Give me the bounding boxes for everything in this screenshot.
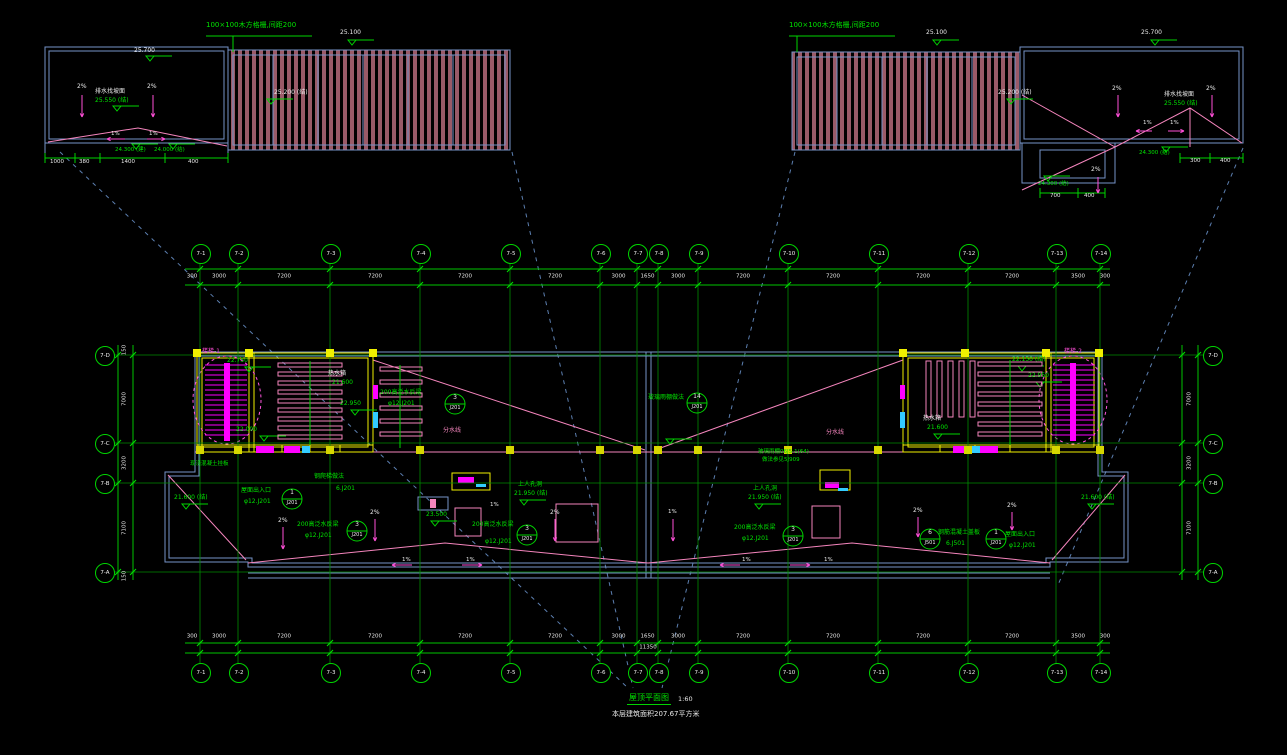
dim-edge: 300	[187, 634, 198, 640]
note-label: 1%	[668, 510, 677, 516]
note-label: 1%	[824, 558, 833, 564]
note-label: 分水线	[826, 430, 844, 436]
note-label: φ12.J201	[305, 533, 332, 539]
axis-bubble: 7-11	[869, 663, 889, 683]
note-label: 21.950 (结)	[748, 495, 782, 501]
axis-bubble: 7-8	[649, 244, 669, 264]
gen-rect	[506, 446, 514, 454]
gen-rect	[633, 446, 641, 454]
note-label: 钢筋混凝土盖板	[938, 530, 980, 536]
note-label: 2%	[370, 510, 380, 516]
note-label: 排水找坡面	[1164, 92, 1194, 98]
dim-top: 7200	[1005, 274, 1019, 280]
elevation-marker	[348, 40, 356, 45]
dim-edge: 300	[187, 274, 198, 280]
note-label: 2%	[1206, 86, 1216, 92]
note-label: 2%	[147, 84, 157, 90]
elevation-marker	[520, 500, 528, 505]
note-label: 25.200 (结)	[998, 90, 1032, 96]
callout-number: 1	[994, 530, 998, 536]
note-label: 24.300 (结)	[1139, 151, 1170, 157]
note-label: 热水箱	[328, 371, 346, 377]
gen-rect	[1095, 349, 1103, 357]
gen-rect	[196, 446, 204, 454]
note-label: 200高泛水反梁	[380, 390, 421, 396]
dim-top: 3500	[1071, 274, 1085, 280]
gen-rect	[380, 380, 422, 384]
dim-right: 7000	[1187, 392, 1193, 406]
note-label: 200高泛水反梁	[472, 522, 513, 528]
elevation-marker	[933, 40, 941, 45]
axis-bubble: 7-B	[1203, 474, 1223, 494]
gen-rect	[1070, 363, 1076, 441]
note-label: 楼梯-1	[202, 349, 220, 355]
note-label: 400	[188, 160, 199, 166]
dim-subtotal: 11350	[639, 645, 657, 651]
dim-bottom: 7200	[277, 634, 291, 640]
axis-bubble: 7-12	[959, 663, 979, 683]
dim-bottom: 3500	[1071, 634, 1085, 640]
note-label: 22.150 (结)	[1012, 357, 1046, 363]
dim-top: 3000	[612, 274, 626, 280]
note-label: 做法参见5J909	[762, 458, 800, 464]
dim-top: 7200	[916, 274, 930, 280]
area-note: 本层建筑面积207.67平方米	[612, 711, 700, 718]
dim-top: 1650	[641, 274, 655, 280]
callout-ref: J201	[449, 406, 460, 411]
detail-right	[789, 36, 1243, 198]
note-label: 21.600	[927, 425, 948, 431]
callout-number: 1	[290, 490, 294, 496]
dim-edge: 300	[1100, 274, 1111, 280]
axis-bubble: 7-9	[689, 663, 709, 683]
note-label: 23.500	[426, 512, 447, 518]
axis-bubble: 7-10	[779, 663, 799, 683]
note-label: 200高泛水反梁	[734, 525, 775, 531]
dim-edge: 150	[122, 571, 128, 582]
note-label: 1400	[121, 160, 135, 166]
gen-rect	[899, 349, 907, 357]
note-label: 热水箱	[923, 416, 941, 422]
drawing-scale: 1:60	[678, 696, 693, 703]
note-label: 24.300 (建)	[115, 148, 146, 154]
note-label: 400	[1084, 194, 1095, 200]
callout-ref: J201	[286, 501, 297, 506]
gen-rect	[937, 361, 942, 417]
axis-bubble: 7-12	[959, 244, 979, 264]
note-label: 玻璃雨棚做法	[648, 395, 684, 401]
elevation-marker	[351, 410, 359, 415]
callout-number: 3	[525, 526, 529, 532]
note-label: 2%	[1007, 503, 1017, 509]
dim-top: 7200	[368, 274, 382, 280]
elevation-marker	[146, 56, 154, 61]
note-label: 现浇混凝土挂板	[190, 462, 229, 468]
callout-ref: J201	[691, 405, 702, 410]
note-label: 25.100	[340, 30, 361, 36]
axis-bubble: 7-5	[501, 244, 521, 264]
note-label: 楼梯-2	[1064, 349, 1082, 355]
note-label: 24.300 (结)	[1038, 182, 1069, 188]
callout-ref: J201	[521, 537, 532, 542]
gen-rect	[193, 349, 201, 357]
callout-ref: J201	[351, 533, 362, 538]
note-label: 2%	[550, 510, 560, 516]
note-label: 上人孔洞	[753, 486, 777, 492]
dim-top: 7200	[458, 274, 472, 280]
gen-rect	[326, 446, 334, 454]
axis-bubble: 7-4	[411, 244, 431, 264]
gen-rect	[380, 432, 422, 436]
gen-rect	[1052, 446, 1060, 454]
note-label: 21.600	[332, 380, 353, 386]
gen-rect	[964, 446, 972, 454]
dim-top: 3000	[671, 274, 685, 280]
note-label: 22.000	[236, 427, 257, 433]
note-label: 玻璃雨棚06J5-1(64)	[758, 450, 809, 456]
dim-bottom: 3000	[612, 634, 626, 640]
note-label: 2%	[1091, 167, 1101, 173]
axis-bubble: 7-14	[1091, 244, 1111, 264]
gen-rect	[1096, 446, 1104, 454]
gen-rect	[874, 446, 882, 454]
gen-rect	[224, 363, 230, 441]
note-label: 2%	[77, 84, 87, 90]
gen-rect	[245, 349, 253, 357]
elevation-marker	[113, 106, 121, 111]
note-label: 22.750	[227, 358, 248, 364]
note-label: 6.J201	[336, 486, 355, 492]
note-label: 21.950 (结)	[514, 491, 548, 497]
callout-number: 3	[453, 395, 457, 401]
axis-bubble: 7-5	[501, 663, 521, 683]
note-label: 1%	[490, 503, 499, 509]
note-label: 排水找坡面	[95, 89, 125, 95]
axis-bubble: 7-9	[689, 244, 709, 264]
dim-bottom: 3000	[212, 634, 226, 640]
note-label: 1%	[1143, 121, 1152, 127]
note-label: 1%	[466, 558, 475, 564]
pergola-note-right: 100×100木方格栅,间距200	[789, 22, 879, 29]
axis-bubble: 7-6	[591, 663, 611, 683]
dim-bottom: 7200	[916, 634, 930, 640]
gen-rect	[961, 349, 969, 357]
gen-rect	[959, 361, 964, 417]
note-label: 2%	[913, 508, 923, 514]
note-label: 6.J501	[946, 541, 965, 547]
note-label: 22.950	[340, 401, 361, 407]
axis-bubble: 7-D	[1203, 346, 1223, 366]
note-label: 25.700	[1141, 30, 1162, 36]
note-label: 25.700	[134, 48, 155, 54]
note-label: 24.000 (结)	[154, 148, 185, 154]
axis-bubble: 7-2	[229, 663, 249, 683]
axis-bubble: 7-11	[869, 244, 889, 264]
note-label: 屋面出入口	[1005, 532, 1035, 538]
axis-bubble: 7-3	[321, 663, 341, 683]
callout-number: 3	[355, 522, 359, 528]
dim-edge: 300	[1100, 634, 1111, 640]
dim-right: 7100	[1187, 521, 1193, 535]
gen-rect	[380, 419, 422, 423]
note-label: 1%	[111, 132, 120, 138]
plan-artwork	[0, 0, 1287, 755]
dim-left: 3200	[122, 456, 128, 470]
dim-top: 7200	[277, 274, 291, 280]
elevation-marker	[1018, 366, 1026, 371]
note-label: 400	[1220, 159, 1231, 165]
elevation-marker	[934, 434, 942, 439]
dim-edge: 150	[122, 345, 128, 356]
axis-bubble: 7-A	[1203, 563, 1223, 583]
note-label: 1%	[742, 558, 751, 564]
axis-bubble: 7-4	[411, 663, 431, 683]
dim-bottom: 3000	[671, 634, 685, 640]
note-label: 2%	[278, 518, 288, 524]
axis-bubble: 7-14	[1091, 663, 1111, 683]
gen-rect	[416, 446, 424, 454]
axis-bubble: 7-1	[191, 663, 211, 683]
note-label: 2%	[1112, 86, 1122, 92]
elevation-marker	[755, 504, 763, 509]
note-label: 1%	[402, 558, 411, 564]
note-label: φ12.J201	[244, 499, 271, 505]
axis-bubble: 7-6	[591, 244, 611, 264]
axis-bubble: 7-8	[649, 663, 669, 683]
dim-bottom: 7200	[1005, 634, 1019, 640]
note-label: φ12.J201	[1009, 543, 1036, 549]
note-label: 钢爬梯做法	[314, 474, 344, 480]
note-label: 25.550 (结)	[95, 98, 129, 104]
dim-bottom: 7200	[736, 634, 750, 640]
note-label: φ12.J201	[742, 536, 769, 542]
dim-bottom: 7200	[548, 634, 562, 640]
note-label: 21.600 (结)	[174, 495, 208, 501]
callout-number: 3	[791, 527, 795, 533]
axis-bubble: 7-C	[1203, 434, 1223, 454]
callout-ref: J201	[990, 541, 1001, 546]
note-label: 屋面出入口	[241, 488, 271, 494]
axis-bubble: 7-13	[1047, 663, 1067, 683]
dim-bottom: 7200	[458, 634, 472, 640]
callout-ref: J201	[787, 538, 798, 543]
note-label: 分水线	[443, 428, 461, 434]
note-label: 1000	[50, 160, 64, 166]
dim-left: 7000	[122, 392, 128, 406]
dim-top: 3000	[212, 274, 226, 280]
pergola-hatch-right	[792, 52, 1020, 150]
note-label: 380	[79, 160, 90, 166]
dim-bottom: 1650	[641, 634, 655, 640]
axis-bubble: 7-1	[191, 244, 211, 264]
axis-bubble: 7-2	[229, 244, 249, 264]
axis-bubble: 7-3	[321, 244, 341, 264]
callout-ref: J501	[924, 541, 935, 546]
note-label: 25.550 (结)	[1164, 101, 1198, 107]
axis-bubble: 7-A	[95, 563, 115, 583]
axis-bubble: 7-D	[95, 346, 115, 366]
axis-bubble: 7-10	[779, 244, 799, 264]
gen-rect	[970, 361, 975, 417]
dim-top: 7200	[736, 274, 750, 280]
dim-bottom: 7200	[826, 634, 840, 640]
drawing-title: 屋顶平面图	[629, 694, 669, 702]
note-label: 21.600 (结)	[1081, 495, 1115, 501]
note-label: 700	[1050, 194, 1061, 200]
axis-bubble: 7-B	[95, 474, 115, 494]
note-label: 300	[1190, 159, 1201, 165]
note-label: 22.950	[1028, 373, 1049, 379]
gen-rect	[596, 446, 604, 454]
pergola-note-left: 100×100木方格栅,间距200	[206, 22, 296, 29]
gen-rect	[694, 446, 702, 454]
gen-rect	[948, 361, 953, 417]
axis-bubble: 7-7	[628, 663, 648, 683]
elevation-marker	[431, 521, 439, 526]
dim-left: 7100	[122, 521, 128, 535]
gen-rect	[326, 349, 334, 357]
gen-rect	[654, 446, 662, 454]
dim-bottom: 7200	[368, 634, 382, 640]
dim-top: 7200	[826, 274, 840, 280]
note-label: φ12.J201	[485, 539, 512, 545]
axis-bubble: 7-7	[628, 244, 648, 264]
elevation-marker	[260, 436, 268, 441]
elevation-marker	[1151, 40, 1159, 45]
cad-roof-plan-drawing: 100×100木方格栅,间距200 100×100木方格栅,间距200 25.1…	[0, 0, 1287, 755]
title-underline	[627, 704, 671, 705]
dim-top: 7200	[548, 274, 562, 280]
note-label: 25.200 (结)	[274, 90, 308, 96]
dim-right: 3200	[1187, 456, 1193, 470]
callout-number: 14	[693, 394, 701, 400]
pergola-hatch-left	[228, 50, 510, 150]
gen-rect	[926, 361, 931, 417]
elevation-marker	[182, 504, 190, 509]
callout-number: 6	[928, 530, 932, 536]
note-label: 25.100	[926, 30, 947, 36]
gen-rect	[369, 349, 377, 357]
gen-rect	[234, 446, 242, 454]
note-label: φ12.J201	[388, 401, 415, 407]
axis-bubble: 7-13	[1047, 244, 1067, 264]
axis-bubble: 7-C	[95, 434, 115, 454]
note-label: 上人孔洞	[518, 482, 542, 488]
note-label: 200高泛水反梁	[297, 522, 338, 528]
note-label: 1%	[1170, 121, 1179, 127]
note-label: 1%	[149, 132, 158, 138]
